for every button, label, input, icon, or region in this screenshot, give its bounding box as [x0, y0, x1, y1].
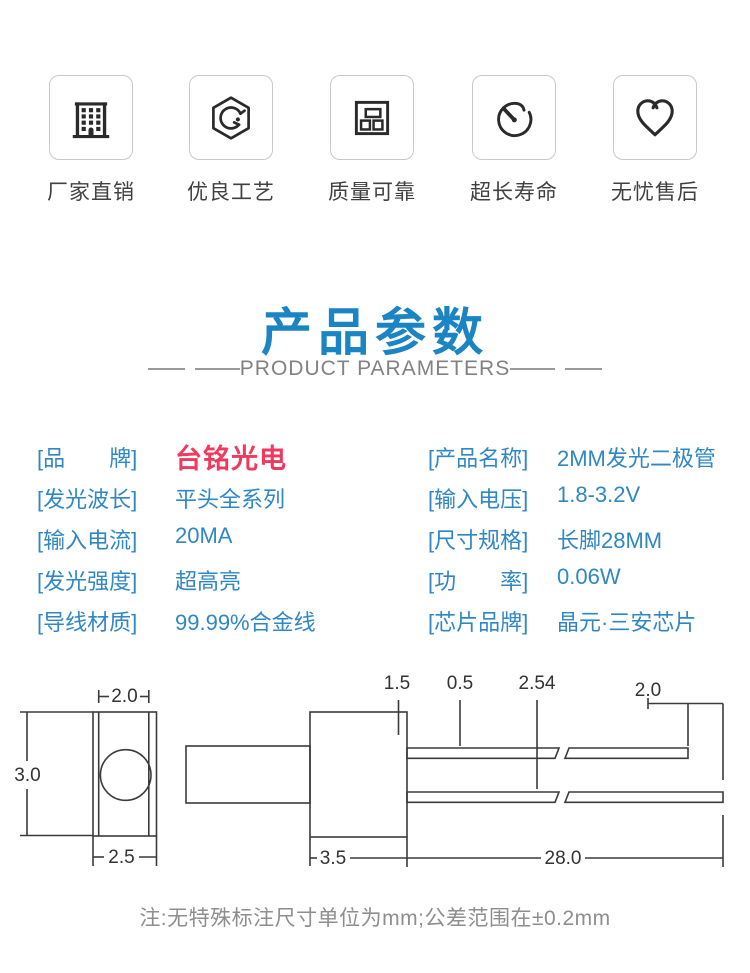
- param-value: 1.8-3.2V: [557, 482, 640, 508]
- param-row-input-voltage: [输入电压] 1.8-3.2V: [428, 482, 750, 506]
- param-row-size-spec: [尺寸规格] 长脚28MM: [428, 523, 750, 547]
- product-parameters-page: 厂家直销 优良工艺 质量可靠: [0, 0, 750, 973]
- feature-box: [49, 75, 133, 160]
- building-icon: [66, 93, 116, 143]
- param-column-left: [品 牌] 台铭光电 [发光波长] 平头全系列 [输入电流] 20MA [发光强…: [37, 441, 367, 646]
- dim-front-height: 3.0: [14, 765, 40, 786]
- feature-label: 优良工艺: [171, 176, 291, 206]
- param-row-product-name: [产品名称] 2MM发光二极管: [428, 441, 750, 465]
- param-value: 2MM发光二极管: [557, 441, 716, 473]
- param-row-wavelength: [发光波长] 平头全系列: [37, 482, 367, 506]
- param-value: 0.06W: [557, 564, 621, 590]
- dim-lead-thickness: 0.5: [447, 673, 473, 694]
- param-column-right: [产品名称] 2MM发光二极管 [输入电压] 1.8-3.2V [尺寸规格] 长…: [428, 441, 750, 646]
- feature-worry-free-service: 无忧售后: [613, 75, 697, 160]
- param-label: [产品名称]: [428, 441, 528, 473]
- dim-front-bottom-width: 2.5: [108, 847, 134, 868]
- param-label: [发光强度]: [37, 564, 137, 596]
- param-row-chip-brand: [芯片品牌] 晶元·三安芯片: [428, 605, 750, 629]
- param-value: 超高亮: [175, 564, 241, 596]
- heart-icon: [630, 93, 680, 143]
- dim-lead-pitch: 2.54: [519, 673, 556, 694]
- param-row-input-current: [输入电流] 20MA: [37, 523, 367, 547]
- param-label: [发光波长]: [37, 482, 137, 514]
- feature-reliable-quality: 质量可靠: [330, 75, 414, 160]
- param-label: [尺寸规格]: [428, 523, 528, 555]
- components-icon: [347, 93, 397, 143]
- param-value: 晶元·三安芯片: [557, 605, 696, 637]
- page-subtitle: PRODUCT PARAMETERS: [240, 357, 510, 381]
- divider-dash: [510, 368, 555, 370]
- param-row-brand: [品 牌] 台铭光电: [37, 441, 367, 465]
- param-label: [输入电压]: [428, 482, 528, 514]
- param-label: [导线材质]: [37, 605, 137, 637]
- dim-lead-end-offset: 2.0: [635, 680, 661, 701]
- param-label: [品 牌]: [37, 441, 137, 473]
- stopwatch-icon: [489, 93, 539, 143]
- param-row-wire-material: [导线材质] 99.99%合金线: [37, 605, 367, 629]
- param-value: 20MA: [175, 523, 232, 549]
- page-title: 产品参数: [0, 291, 750, 365]
- param-label: [功 率]: [428, 564, 528, 596]
- feature-box: [613, 75, 697, 160]
- feature-box: [330, 75, 414, 160]
- param-value: 平头全系列: [175, 482, 285, 514]
- param-label: [输入电流]: [37, 523, 137, 555]
- tolerance-note: 注:无特殊标注尺寸单位为mm;公差范围在±0.2mm: [0, 902, 750, 932]
- page-subtitle-row: PRODUCT PARAMETERS: [0, 357, 750, 381]
- divider-dash: [195, 368, 240, 370]
- feature-box: [189, 75, 273, 160]
- feature-fine-craft: 优良工艺: [189, 75, 273, 160]
- feature-label: 厂家直销: [31, 176, 151, 206]
- dim-tip-length: 1.5: [384, 673, 410, 694]
- divider-dash: [148, 368, 185, 370]
- param-row-luminous-intensity: [发光强度] 超高亮: [37, 564, 367, 588]
- feature-label: 质量可靠: [312, 176, 432, 206]
- feature-box: [472, 75, 556, 160]
- craft-badge-icon: [206, 93, 256, 143]
- param-row-power: [功 率] 0.06W: [428, 564, 750, 588]
- feature-factory-direct: 厂家直销: [49, 75, 133, 160]
- param-value: 长脚28MM: [557, 523, 662, 555]
- param-value-brand: 台铭光电: [175, 437, 287, 476]
- dim-body-length: 3.5: [320, 848, 346, 869]
- param-label: [芯片品牌]: [428, 605, 528, 637]
- dim-lead-length: 28.0: [545, 848, 582, 869]
- led-dimension-diagram: 2.0 3.0 2.5 1.5 0.5 2.54 2.0 3.5 28.0: [0, 660, 750, 875]
- feature-label: 超长寿命: [454, 176, 574, 206]
- feature-long-lifespan: 超长寿命: [472, 75, 556, 160]
- param-value: 99.99%合金线: [175, 605, 316, 637]
- divider-dash: [565, 368, 602, 370]
- dim-front-top-width: 2.0: [111, 686, 137, 707]
- feature-label: 无忧售后: [595, 176, 715, 206]
